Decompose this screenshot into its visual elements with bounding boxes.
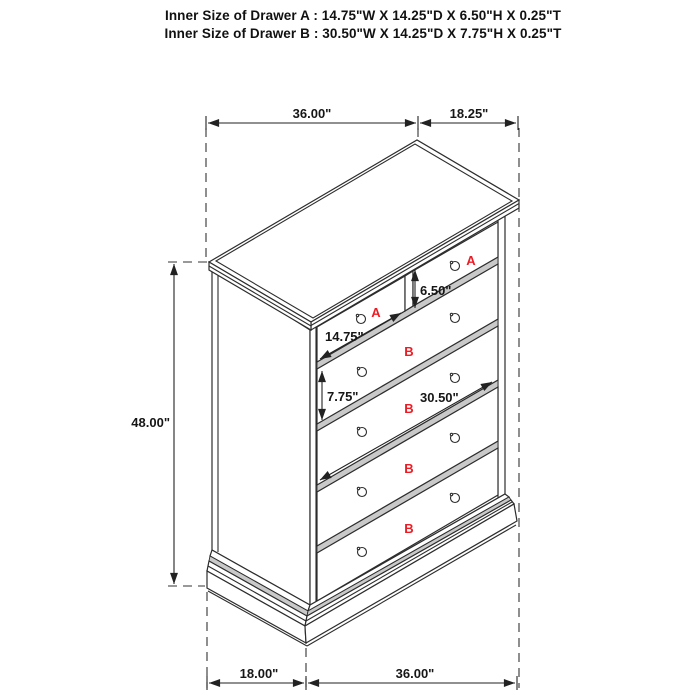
drawer-knob (450, 433, 459, 442)
drawer-b-height-value: 7.75" (327, 389, 358, 404)
drawer-b-3-label: B (404, 461, 413, 476)
drawer-knob (357, 487, 366, 496)
drawer-knob (450, 313, 459, 322)
drawer-b-4-label: B (404, 521, 413, 536)
top-width-value: 36.00" (293, 106, 332, 121)
drawer-a-width-value: 14.75" (325, 329, 364, 344)
dimension-height: 48.00" (131, 264, 174, 584)
drawer-a-height-value: 6.50" (420, 283, 451, 298)
drawer-knob (357, 547, 366, 556)
dimension-bottom-width: 36.00" (308, 666, 517, 690)
drawer-a-right-label: A (466, 253, 476, 268)
dresser-line-drawing: 36.00" 18.25" 48.00" 18.00" (0, 0, 700, 700)
drawer-b-1-label: B (404, 344, 413, 359)
bottom-depth-value: 18.00" (240, 666, 279, 681)
top-depth-value: 18.25" (450, 106, 489, 121)
drawer-b-width-value: 30.50" (420, 390, 459, 405)
drawer-knob (450, 493, 459, 502)
dimension-bottom-depth: 18.00" (207, 666, 306, 690)
drawer-b-2-label: B (404, 401, 413, 416)
bottom-width-value: 36.00" (396, 666, 435, 681)
furniture-dimension-diagram: Inner Size of Drawer A : 14.75"W X 14.25… (0, 0, 700, 700)
dimension-top-width: 36.00" (206, 106, 418, 130)
drawer-a-left-label: A (371, 305, 381, 320)
drawer-knob (357, 367, 366, 376)
drawer-knob (357, 427, 366, 436)
drawer-knob (450, 261, 459, 270)
dimension-top-depth: 18.25" (420, 106, 518, 130)
height-value: 48.00" (131, 415, 170, 430)
drawer-a-divider (405, 271, 413, 311)
drawer-knob (356, 314, 365, 323)
drawer-knob (450, 373, 459, 382)
